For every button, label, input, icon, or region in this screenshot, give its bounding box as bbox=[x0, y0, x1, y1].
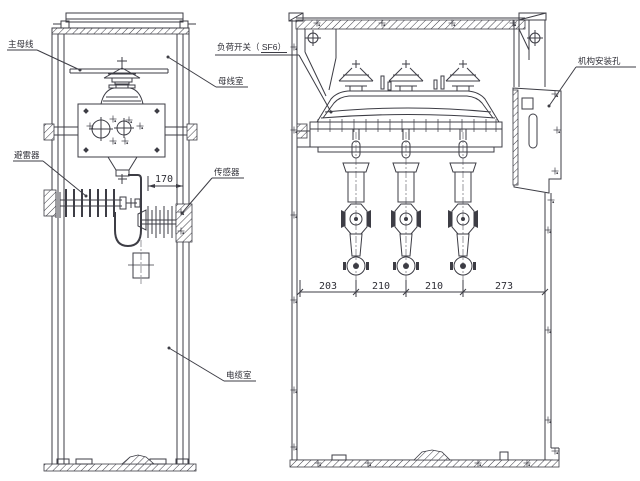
dimension-170: 170 bbox=[148, 174, 183, 191]
annotations: 主母线 负荷开关（ SF6） 母线室 避雷器 传感器 bbox=[7, 39, 636, 381]
label-busbar-compartment: 母线室 bbox=[167, 56, 249, 88]
label-cable-compartment-text: 电缆室 bbox=[226, 370, 252, 380]
dim-273-text: 273 bbox=[495, 281, 513, 292]
label-busbar-compartment-text: 母线室 bbox=[218, 76, 244, 86]
mechanism-panel bbox=[78, 104, 165, 157]
right-wall bbox=[545, 193, 560, 460]
right-view: 203 210 210 273 bbox=[289, 13, 561, 467]
label-cable-compartment: 电缆室 bbox=[168, 347, 257, 382]
label-mechanism-mounting-hole-text: 机构安装孔 bbox=[578, 56, 621, 66]
drawing-canvas: 170 bbox=[0, 0, 640, 481]
label-sensor-text: 传感器 bbox=[214, 167, 240, 177]
top-left-bracket bbox=[305, 29, 336, 96]
main-busbar-assembly bbox=[70, 57, 168, 104]
dim-210a-text: 210 bbox=[372, 281, 390, 292]
sensor-bushing bbox=[138, 204, 192, 242]
left-view-top-lid bbox=[53, 13, 196, 28]
left-view-base bbox=[44, 455, 196, 471]
label-main-busbar: 主母线 bbox=[7, 39, 82, 72]
top-right-bracket bbox=[514, 13, 546, 87]
dim-170-text: 170 bbox=[155, 174, 173, 185]
left-view: 170 bbox=[44, 13, 197, 471]
mechanism-mounting-plate bbox=[513, 88, 561, 204]
drawing-sheet: 170 bbox=[0, 0, 640, 481]
left-view-cabinet-shell bbox=[52, 28, 189, 465]
label-surge-arrester-text: 避雷器 bbox=[14, 150, 40, 160]
dim-203-text: 203 bbox=[319, 281, 337, 292]
phase-spacing-dimensions: 203 210 210 273 bbox=[297, 280, 548, 297]
label-load-switch-text: 负荷开关（ SF6） bbox=[217, 42, 286, 52]
dim-210b-text: 210 bbox=[425, 281, 443, 292]
label-main-busbar-text: 主母线 bbox=[8, 39, 34, 49]
right-view-cabinet-shell bbox=[289, 13, 553, 460]
right-view-base bbox=[290, 450, 559, 467]
